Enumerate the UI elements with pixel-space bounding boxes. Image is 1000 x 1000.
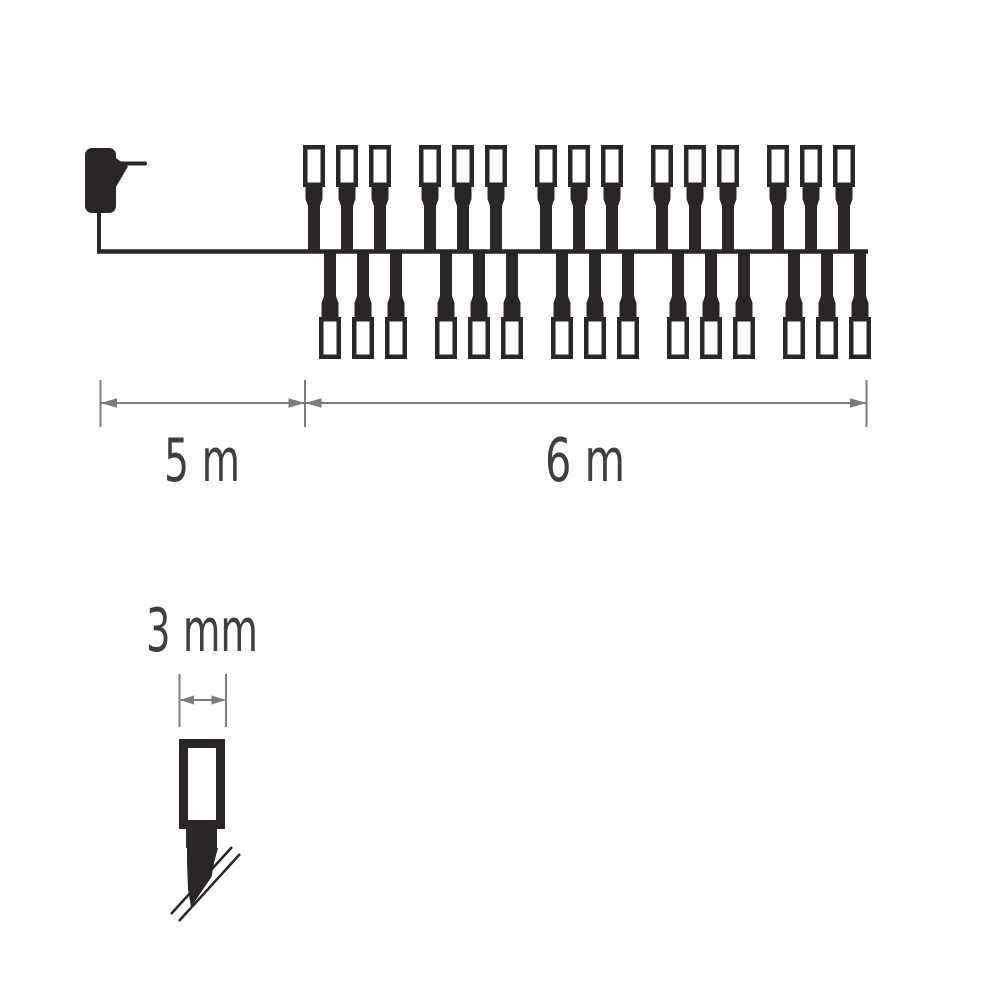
bulb-cluster-above bbox=[537, 147, 621, 253]
led-bulb-above bbox=[769, 147, 787, 253]
bulb-stem bbox=[720, 187, 737, 253]
led-bulb-above bbox=[537, 147, 555, 253]
bulb-cluster-above bbox=[653, 147, 737, 253]
diagram-canvas: 5 m 6 m 3 mm bbox=[0, 0, 1000, 1000]
power-adapter bbox=[85, 148, 147, 252]
bulb-stem bbox=[355, 250, 372, 317]
bulb-cap bbox=[338, 147, 356, 185]
bulb-cap bbox=[719, 147, 737, 185]
bulb-stem bbox=[422, 187, 439, 253]
bulb-stem bbox=[803, 187, 820, 253]
led-bulb-above bbox=[686, 147, 704, 253]
detail-bulb-neck bbox=[186, 826, 217, 848]
string-lights-diagram: 5 m 6 m 3 mm bbox=[0, 0, 1000, 1000]
bulb-row-below bbox=[321, 250, 869, 357]
arrowhead-left-out bbox=[101, 398, 118, 407]
bulb-cap bbox=[470, 319, 488, 357]
bulb-cap bbox=[769, 147, 787, 185]
bulb-cap bbox=[553, 319, 571, 357]
arrowhead-right-out bbox=[850, 398, 867, 407]
bulb-cluster-below bbox=[785, 250, 869, 357]
bulb-stem bbox=[687, 187, 704, 253]
detail-arrowhead-right bbox=[212, 696, 227, 705]
bulb-stem bbox=[554, 250, 571, 317]
bulb-cluster-below bbox=[553, 250, 637, 357]
led-bulb-above bbox=[570, 147, 588, 253]
bulb-cap bbox=[570, 147, 588, 185]
detail-bulb-cap bbox=[184, 744, 221, 825]
adapter-plug-face bbox=[113, 156, 128, 192]
led-bulb-below bbox=[818, 250, 836, 357]
led-bulb-below bbox=[851, 250, 869, 357]
adapter-body bbox=[85, 148, 116, 213]
lit-length-label: 6 m bbox=[545, 426, 625, 496]
bulb-cap bbox=[619, 319, 637, 357]
bulb-stem bbox=[836, 187, 853, 253]
bulb-cap bbox=[437, 319, 455, 357]
adapter-plug-pin-icon bbox=[120, 162, 147, 166]
bulb-cap bbox=[354, 319, 372, 357]
bulb-stem bbox=[819, 250, 836, 317]
detail-bulb-tip bbox=[187, 848, 218, 907]
bulb-stem bbox=[538, 187, 555, 253]
bulb-cap bbox=[454, 147, 472, 185]
led-bulb-above bbox=[305, 147, 323, 253]
bulb-stem bbox=[306, 187, 323, 253]
bulb-cap bbox=[851, 319, 869, 357]
bulb-cluster-below bbox=[669, 250, 753, 357]
arrowhead-middle-left bbox=[305, 398, 322, 407]
bulb-cap bbox=[835, 147, 853, 185]
bulb-stem bbox=[339, 187, 356, 253]
bulb-stem bbox=[670, 250, 687, 317]
bulb-stem bbox=[770, 187, 787, 253]
bulb-cap bbox=[702, 319, 720, 357]
arrowhead-middle-right bbox=[289, 398, 306, 407]
led-bulb-below bbox=[553, 250, 571, 357]
led-bulb-below bbox=[321, 250, 339, 357]
bulb-stem bbox=[736, 250, 753, 317]
bulb-stem bbox=[455, 187, 472, 253]
bulb-diameter-label: 3 mm bbox=[146, 596, 258, 666]
bulb-cluster-above bbox=[421, 147, 505, 253]
bulb-cap bbox=[785, 319, 803, 357]
bulb-cap bbox=[503, 319, 521, 357]
bulb-stem bbox=[372, 187, 389, 253]
bulb-cluster-above bbox=[305, 147, 389, 253]
bulb-cap bbox=[603, 147, 621, 185]
bulb-stem bbox=[571, 187, 588, 253]
bulb-cap bbox=[305, 147, 323, 185]
led-bulb-below bbox=[586, 250, 604, 357]
bulb-stem bbox=[786, 250, 803, 317]
led-bulb-above bbox=[719, 147, 737, 253]
bulb-stem bbox=[587, 250, 604, 317]
led-bulb-below bbox=[503, 250, 521, 357]
bulb-cap bbox=[387, 319, 405, 357]
dimension-line-detail bbox=[180, 674, 227, 727]
bulb-cluster-above bbox=[769, 147, 853, 253]
bulb-cap bbox=[537, 147, 555, 185]
bulb-stem bbox=[703, 250, 720, 317]
bulb-stem bbox=[620, 250, 637, 317]
lead-length-label: 5 m bbox=[164, 426, 240, 496]
bulb-stem bbox=[604, 187, 621, 253]
led-bulb-above bbox=[802, 147, 820, 253]
bulb-cap bbox=[321, 319, 339, 357]
led-bulb-below bbox=[387, 250, 405, 357]
led-bulb-below bbox=[735, 250, 753, 357]
bulb-cap bbox=[818, 319, 836, 357]
led-bulb-above bbox=[371, 147, 389, 253]
led-bulb-below bbox=[354, 250, 372, 357]
led-bulb-below bbox=[785, 250, 803, 357]
bulb-cap bbox=[487, 147, 505, 185]
bulb-cap bbox=[686, 147, 704, 185]
bulb-cluster-below bbox=[321, 250, 405, 357]
bulb-cap bbox=[802, 147, 820, 185]
led-bulb-below bbox=[470, 250, 488, 357]
bulb-cap bbox=[669, 319, 687, 357]
led-bulb-above bbox=[338, 147, 356, 253]
led-bulb-below bbox=[669, 250, 687, 357]
led-bulb-above bbox=[454, 147, 472, 253]
bulb-stem bbox=[488, 187, 505, 253]
bulb-stem bbox=[852, 250, 869, 317]
led-bulb-above bbox=[603, 147, 621, 253]
bulb-cap bbox=[586, 319, 604, 357]
led-bulb-below bbox=[437, 250, 455, 357]
led-bulb-above bbox=[653, 147, 671, 253]
bulb-stem bbox=[654, 187, 671, 253]
bulb-cap bbox=[735, 319, 753, 357]
bulb-stem bbox=[438, 250, 455, 317]
bulb-cap bbox=[653, 147, 671, 185]
bulb-stem bbox=[504, 250, 521, 317]
led-bulb-above bbox=[487, 147, 505, 253]
bulb-cap bbox=[421, 147, 439, 185]
bulb-cap bbox=[371, 147, 389, 185]
led-bulb-above bbox=[421, 147, 439, 253]
bulb-stem bbox=[471, 250, 488, 317]
led-bulb-above bbox=[835, 147, 853, 253]
led-bulb-below bbox=[702, 250, 720, 357]
detail-arrowhead-left bbox=[180, 696, 195, 705]
bulb-stem bbox=[322, 250, 339, 317]
led-bulb-detail bbox=[171, 744, 240, 922]
bulb-stem bbox=[388, 250, 405, 317]
bulb-row-above bbox=[305, 147, 853, 253]
dimension-line-main bbox=[101, 380, 867, 427]
led-bulb-below bbox=[619, 250, 637, 357]
power-cord bbox=[99, 212, 135, 252]
bulb-cluster-below bbox=[437, 250, 521, 357]
